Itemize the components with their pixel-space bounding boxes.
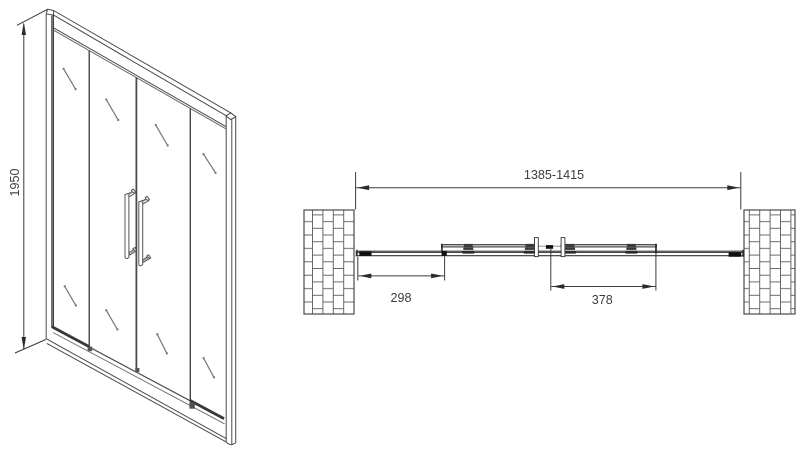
- svg-text:1950: 1950: [8, 168, 22, 196]
- svg-text:378: 378: [592, 293, 613, 307]
- svg-text:1385-1415: 1385-1415: [524, 168, 584, 182]
- svg-text:298: 298: [390, 291, 411, 305]
